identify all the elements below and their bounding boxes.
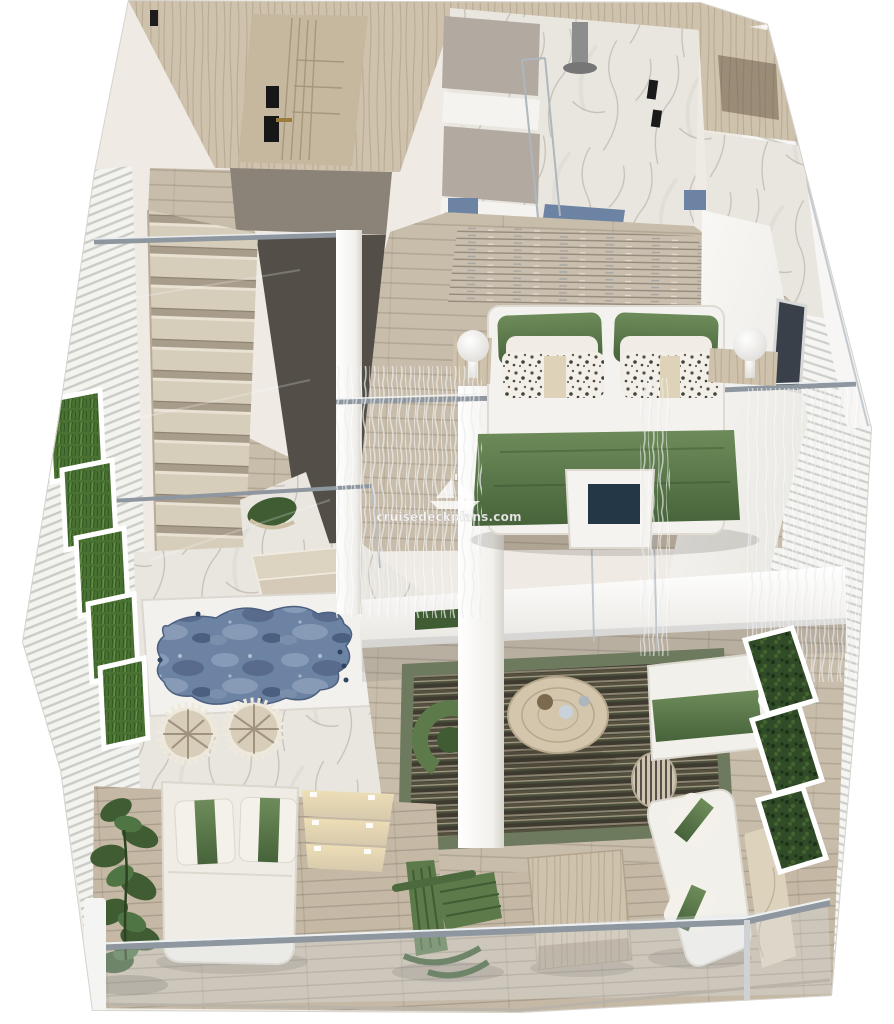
two-level-suite-3d-render: cruisedeckplans.com <box>0 0 894 1024</box>
entry-door <box>238 14 368 166</box>
wall-opening <box>772 300 806 392</box>
vanity-niche <box>718 55 779 120</box>
table-lamp-2 <box>733 327 767 361</box>
jacuzzi-water <box>157 606 351 704</box>
bathroom-cabinet-lower <box>442 126 540 204</box>
jacuzzi <box>142 592 370 716</box>
coffee-table <box>500 677 616 773</box>
daybed-pillow <box>174 799 235 866</box>
pillow-lumbar <box>544 356 566 398</box>
wall-switch <box>150 10 158 26</box>
corner-post <box>84 898 106 1012</box>
wardrobe-block <box>230 168 392 235</box>
decor-bowl <box>537 694 553 710</box>
bath-mat-2 <box>684 190 706 210</box>
daybed-pillow-2 <box>239 797 297 863</box>
watermark-text: cruisedeckplans.com <box>376 510 522 524</box>
decor-glass <box>559 705 573 719</box>
table-lamp <box>457 330 489 362</box>
deck-steps <box>302 790 394 872</box>
door-lock <box>266 86 279 108</box>
floorplan-canvas: cruisedeckplans.com <box>0 0 894 1024</box>
rail-post <box>744 920 750 1002</box>
tv-lift-slot <box>588 484 640 524</box>
